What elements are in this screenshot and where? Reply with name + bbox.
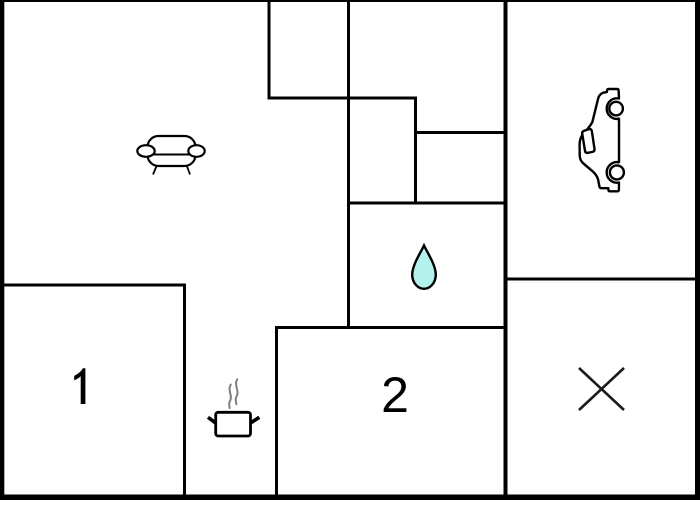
svg-text:2: 2 [381, 367, 409, 423]
